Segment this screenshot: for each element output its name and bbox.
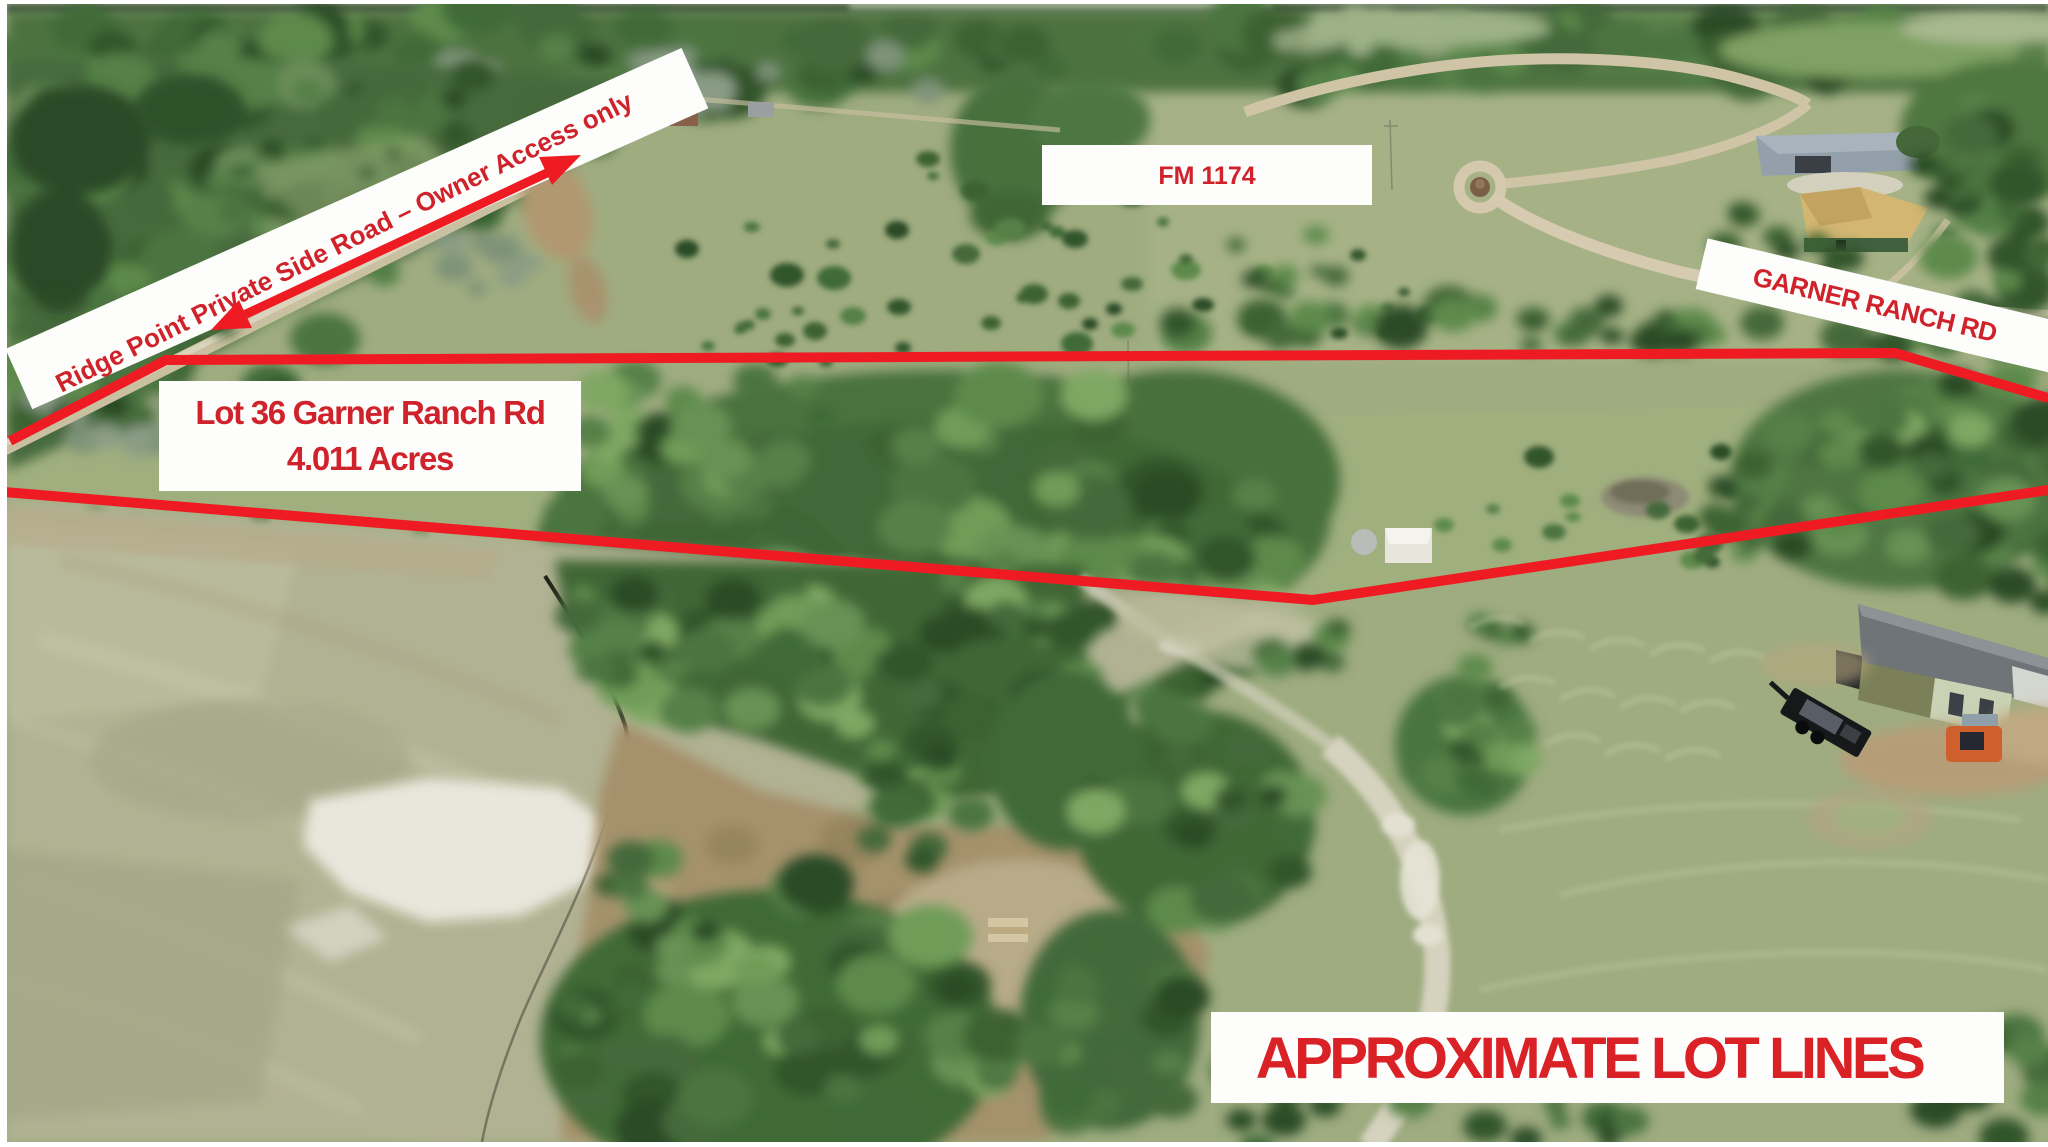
svg-text:4.011 Acres: 4.011 Acres (287, 440, 453, 477)
svg-text:APPROXIMATE LOT LINES: APPROXIMATE LOT LINES (1256, 1026, 1924, 1091)
svg-text:Lot 36 Garner Ranch Rd: Lot 36 Garner Ranch Rd (195, 394, 544, 431)
svg-text:FM 1174: FM 1174 (1158, 162, 1255, 190)
